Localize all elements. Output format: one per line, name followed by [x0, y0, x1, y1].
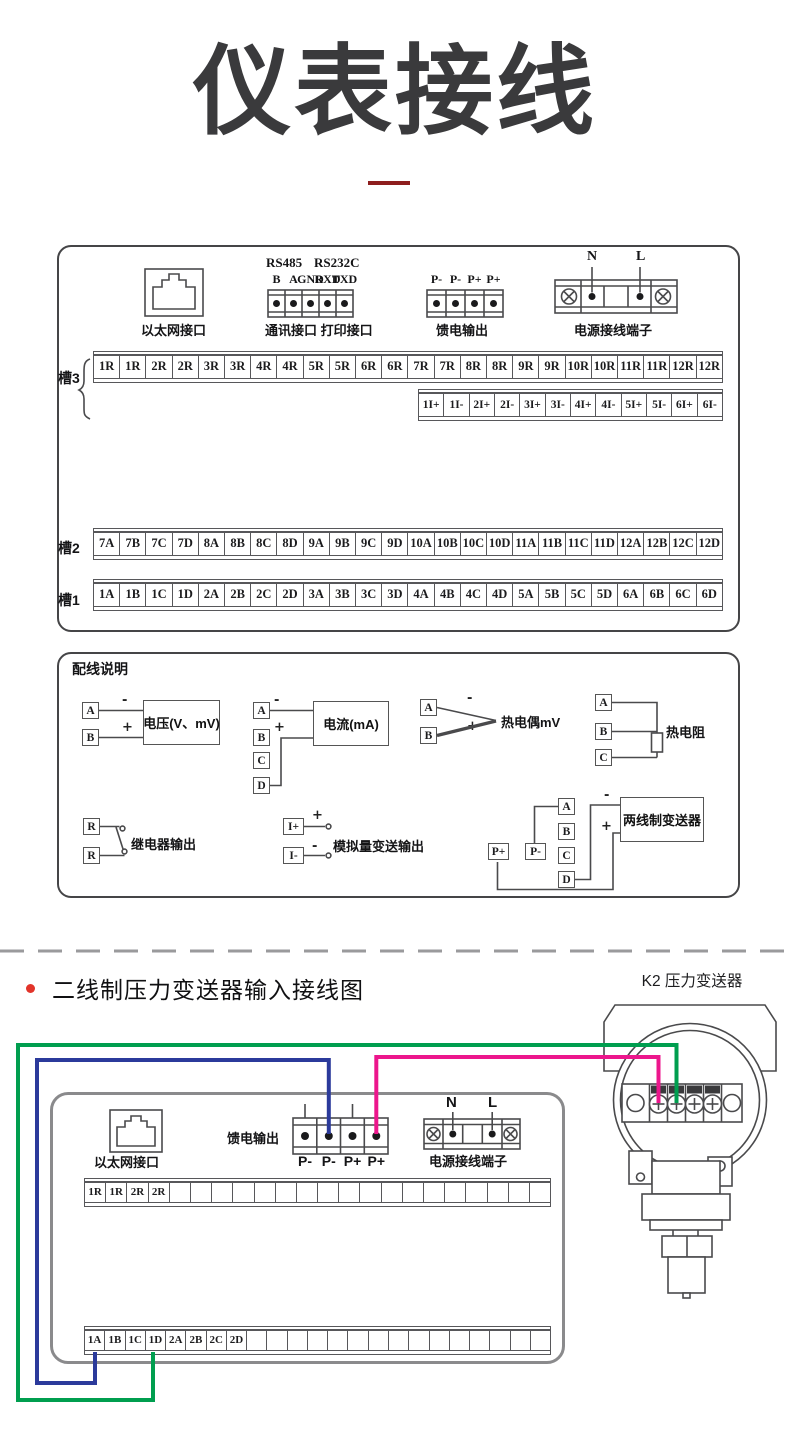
- terminal-cell: 2R: [126, 1182, 147, 1202]
- pressure-transmitter-icon: [604, 1005, 776, 1298]
- rs232c-header: RS232C: [314, 255, 360, 271]
- pin-label: P+: [467, 272, 481, 287]
- minus-sign: -: [122, 693, 127, 708]
- terminal-cell: 12R: [696, 355, 722, 378]
- page-title: 仪表接线: [0, 38, 790, 146]
- terminal-a: A: [82, 702, 99, 719]
- power-pin-n: N: [446, 1094, 457, 1111]
- terminal-cell: [530, 1330, 550, 1350]
- terminal-cell: 9B: [329, 532, 355, 555]
- slot3-row-i: 1I+1I-2I+2I-3I+3I-4I+4I-5I+5I-6I+6I-: [418, 389, 723, 421]
- terminal-cell: 8D: [276, 532, 302, 555]
- terminal-cell: 7R: [434, 355, 460, 378]
- letter-label: A: [654, 1135, 663, 1150]
- terminal-rail: [418, 416, 723, 421]
- terminal-cell: [487, 1182, 508, 1202]
- pin-label: B: [272, 272, 280, 287]
- power-caption: 电源接线端子: [429, 1151, 507, 1170]
- terminal-cell: 6R: [381, 355, 407, 378]
- terminal-cell: 11A: [512, 532, 538, 555]
- terminal-cell: [254, 1182, 275, 1202]
- terminal-cell: 10B: [434, 532, 460, 555]
- terminal-cell: 1C: [145, 583, 171, 606]
- pin-label: P-: [450, 272, 461, 287]
- terminal-cell: 3R: [224, 355, 250, 378]
- terminal-cell: 2C: [250, 583, 276, 606]
- terminal-cell: 5R: [329, 355, 355, 378]
- pin-label: P+: [368, 1153, 386, 1169]
- feed-caption: 馈电输出: [436, 320, 488, 339]
- terminal-p-minus: P-: [525, 843, 546, 860]
- terminal-cell: 1D: [172, 583, 198, 606]
- terminal-cell: 10C: [460, 532, 486, 555]
- transmitter-letter-labels: AB└A┘: [649, 1135, 722, 1150]
- terminal-cell: [465, 1182, 486, 1202]
- terminal-cell: 7R: [407, 355, 433, 378]
- terminal-p-plus: P+: [488, 843, 509, 860]
- terminal-cell: 1A: [94, 583, 119, 606]
- terminal-cell: [388, 1330, 408, 1350]
- terminal-cell: [489, 1330, 509, 1350]
- terminal-cell: 3I-: [545, 393, 570, 416]
- terminal-c: C: [253, 752, 270, 769]
- analog-out-label: 模拟量变送输出: [333, 836, 424, 855]
- terminal-cell: 2I-: [494, 393, 519, 416]
- terminal-cell: [381, 1182, 402, 1202]
- terminal-cell: 2B: [224, 583, 250, 606]
- minus-sign: -: [274, 693, 279, 708]
- terminal-cell: 1I-: [443, 393, 468, 416]
- terminal-cell: [327, 1330, 347, 1350]
- terminal-cell: 10D: [486, 532, 512, 555]
- terminal-cell: [423, 1182, 444, 1202]
- terminal-cell: 7B: [119, 532, 145, 555]
- sign-label: +: [690, 1118, 699, 1135]
- relay-label: 继电器输出: [131, 834, 196, 853]
- terminal-cell: 5I+: [621, 393, 646, 416]
- plus-sign: +: [312, 808, 323, 823]
- terminal-a: A: [595, 694, 612, 711]
- feed-caption: 馈电输出: [227, 1128, 279, 1147]
- terminal-cell: [469, 1330, 489, 1350]
- terminal-cell: 3I+: [519, 393, 544, 416]
- pin-label: P+: [486, 272, 500, 287]
- plus-sign: +: [467, 719, 478, 734]
- terminal-cell: 2D: [226, 1330, 246, 1350]
- terminal-cell: 11D: [591, 532, 617, 555]
- terminal-d: D: [253, 777, 270, 794]
- terminal-cell: 1B: [119, 583, 145, 606]
- comm-caption: 通讯接口 打印接口: [265, 320, 373, 339]
- plus-sign: +: [601, 819, 612, 834]
- terminal-cell: 7C: [145, 532, 171, 555]
- plus-sign: +: [274, 720, 285, 735]
- terminal-cell: 3R: [198, 355, 224, 378]
- terminal-cell: 2D: [276, 583, 302, 606]
- terminal-b: B: [420, 727, 437, 744]
- terminal-cell: 5R: [303, 355, 329, 378]
- terminal-rail: [93, 378, 723, 383]
- terminal-cell: 2R: [172, 355, 198, 378]
- letter-label: └A┘: [689, 1135, 717, 1150]
- terminal-c: C: [558, 847, 575, 864]
- terminal-cell: [169, 1182, 190, 1202]
- terminal-rail: [93, 606, 723, 611]
- minus-sign: -: [467, 691, 472, 706]
- pin-label: P+: [344, 1153, 362, 1169]
- terminal-cell: [359, 1182, 380, 1202]
- terminal-cell: 11R: [617, 355, 643, 378]
- rs485-header: RS485: [266, 255, 302, 271]
- terminal-cell: 11B: [538, 532, 564, 555]
- terminal-cell: 2R: [145, 355, 171, 378]
- thermocouple-label: 热电偶mV: [501, 712, 560, 731]
- terminal-cell: 12D: [696, 532, 722, 555]
- slot1-row: 1A1B1C1D2A2B2C2D3A3B3C3D4A4B4C4D5A5B5C5D…: [93, 579, 723, 611]
- terminal-c: C: [595, 749, 612, 766]
- wiring-explanation-title: 配线说明: [72, 659, 128, 679]
- terminal-cell: 5D: [591, 583, 617, 606]
- terminal-cell: 4R: [276, 355, 302, 378]
- terminal-cell: [338, 1182, 359, 1202]
- terminal-cell: 10A: [407, 532, 433, 555]
- terminal-cell: 4C: [460, 583, 486, 606]
- terminal-cell: 4B: [434, 583, 460, 606]
- terminal-rail: [93, 555, 723, 560]
- terminal-cell: 6D: [696, 583, 722, 606]
- terminal-cell: 9R: [512, 355, 538, 378]
- terminal-cell: 1B: [104, 1330, 124, 1350]
- pin-label: P-: [431, 272, 442, 287]
- terminal-cell: [444, 1182, 465, 1202]
- terminal-cell: [317, 1182, 338, 1202]
- terminal-cell: 2C: [206, 1330, 226, 1350]
- recorder-bottom-row: 1A1B1C1D2A2B2C2D: [84, 1326, 551, 1355]
- terminal-cell: [510, 1330, 530, 1350]
- terminal-a: A: [253, 702, 270, 719]
- slot1-label: 槽1: [58, 590, 80, 610]
- terminal-cell: [529, 1182, 550, 1202]
- terminal-cell: 3D: [381, 583, 407, 606]
- power-pin-l: L: [636, 249, 645, 265]
- terminal-cell: [347, 1330, 367, 1350]
- terminal-r1: R: [83, 818, 100, 835]
- terminal-cell: 8B: [224, 532, 250, 555]
- terminal-cell: 4I-: [595, 393, 620, 416]
- terminal-rail: [84, 1350, 551, 1355]
- section2-heading: 二线制压力变送器输入接线图: [52, 971, 364, 1005]
- terminal-cell: 12C: [669, 532, 695, 555]
- terminal-cell: 8R: [460, 355, 486, 378]
- slot3-row-r: 1R1R2R2R3R3R4R4R5R5R6R6R7R7R8R8R9R9R10R1…: [93, 351, 723, 383]
- terminal-rail: [84, 1202, 551, 1207]
- letter-label: B: [672, 1135, 681, 1150]
- comm-pin-labels: BAGNDRXDTXD: [264, 272, 356, 287]
- sign-label: -: [674, 1118, 679, 1135]
- ethernet-caption: 以太网接口: [141, 320, 206, 339]
- terminal-cell: [246, 1330, 266, 1350]
- terminal-cell: [402, 1182, 423, 1202]
- terminal-cell: 9D: [381, 532, 407, 555]
- slot2-row: 7A7B7C7D8A8B8C8D9A9B9C9D10A10B10C10D11A1…: [93, 528, 723, 560]
- terminal-cell: 10R: [591, 355, 617, 378]
- terminal-cell: 3B: [329, 583, 355, 606]
- terminal-cell: 1A: [85, 1330, 104, 1350]
- terminal-cell: 2R: [148, 1182, 169, 1202]
- terminal-b: B: [82, 729, 99, 746]
- terminal-cell: 1R: [94, 355, 119, 378]
- feed-pin-labels: P-P-P+P+: [293, 1153, 388, 1168]
- terminal-cell: [296, 1182, 317, 1202]
- red-bullet-icon: [26, 984, 35, 993]
- terminal-cell: [275, 1182, 296, 1202]
- terminal-cell: 4I+: [570, 393, 595, 416]
- terminal-cell: 2I+: [469, 393, 494, 416]
- transmitter-sign-labels: +-+-: [649, 1118, 722, 1133]
- terminal-cell: [232, 1182, 253, 1202]
- terminal-cell: 6I+: [671, 393, 696, 416]
- terminal-r2: R: [83, 847, 100, 864]
- terminal-cell: 5A: [512, 583, 538, 606]
- power-pin-n: N: [587, 249, 597, 265]
- terminal-cell: 4A: [407, 583, 433, 606]
- terminal-cell: 6B: [643, 583, 669, 606]
- minus-sign: -: [604, 788, 609, 803]
- wiring-explanation-panel: [57, 652, 740, 898]
- terminal-cell: [307, 1330, 327, 1350]
- transmitter-terminal-block: [622, 1084, 742, 1122]
- terminal-cell: 6A: [617, 583, 643, 606]
- terminal-cell: 11R: [643, 355, 669, 378]
- power-pin-l: L: [488, 1094, 497, 1111]
- recorder-box: [50, 1092, 565, 1364]
- terminal-cell: [287, 1330, 307, 1350]
- terminal-cell: 9A: [303, 532, 329, 555]
- terminal-cell: [190, 1182, 211, 1202]
- terminal-cell: 3A: [303, 583, 329, 606]
- terminal-cell: 8R: [486, 355, 512, 378]
- slot3-label: 槽3: [58, 368, 80, 388]
- terminal-cell: 7A: [94, 532, 119, 555]
- terminal-cell: 3C: [355, 583, 381, 606]
- two-wire-device-box: 两线制变送器: [620, 797, 704, 842]
- terminal-cell: 2A: [165, 1330, 185, 1350]
- power-caption: 电源接线端子: [574, 320, 652, 339]
- terminal-cell: 8C: [250, 532, 276, 555]
- terminal-b: B: [253, 729, 270, 746]
- terminal-b: B: [595, 723, 612, 740]
- terminal-cell: [429, 1330, 449, 1350]
- terminal-cell: 2A: [198, 583, 224, 606]
- terminal-cell: [211, 1182, 232, 1202]
- terminal-i-minus: I-: [283, 847, 304, 864]
- terminal-cell: 2B: [185, 1330, 205, 1350]
- minus-sign: -: [312, 839, 317, 854]
- terminal-cell: 11C: [565, 532, 591, 555]
- title-underline: [368, 181, 410, 185]
- terminal-cell: 8A: [198, 532, 224, 555]
- terminal-panel: [57, 245, 740, 632]
- terminal-b: B: [558, 823, 575, 840]
- terminal-cell: 5B: [538, 583, 564, 606]
- instrument-wiring-page: { "title": { "text": "仪表接线" }, "panel1":…: [0, 0, 790, 1435]
- k2-transmitter-label: K2 压力变送器: [612, 969, 772, 991]
- sign-label: -: [710, 1118, 715, 1135]
- terminal-i-plus: I+: [283, 818, 304, 835]
- terminal-cell: 7D: [172, 532, 198, 555]
- terminal-cell: [266, 1330, 286, 1350]
- terminal-cell: 1I+: [419, 393, 443, 416]
- pin-label: P-: [322, 1153, 336, 1169]
- terminal-cell: 1D: [145, 1330, 165, 1350]
- terminal-a: A: [420, 699, 437, 716]
- terminal-cell: 4R: [250, 355, 276, 378]
- rtd-label: 热电阻: [666, 722, 705, 741]
- plus-sign: +: [122, 720, 133, 735]
- terminal-cell: 12A: [617, 532, 643, 555]
- current-device-box: 电流(mA): [313, 701, 389, 746]
- terminal-cell: 9R: [538, 355, 564, 378]
- pin-label: TXD: [332, 272, 357, 287]
- terminal-cell: 1C: [125, 1330, 145, 1350]
- voltage-device-box: 电压(V、mV): [143, 700, 220, 745]
- ethernet-caption: 以太网接口: [94, 1152, 159, 1171]
- terminal-cell: 10R: [565, 355, 591, 378]
- terminal-cell: [368, 1330, 388, 1350]
- terminal-cell: 1R: [105, 1182, 126, 1202]
- terminal-cell: 1R: [85, 1182, 105, 1202]
- terminal-cell: 6I-: [697, 393, 722, 416]
- terminal-cell: 6R: [355, 355, 381, 378]
- pin-label: P-: [298, 1153, 312, 1169]
- terminal-cell: 12R: [669, 355, 695, 378]
- terminal-cell: 6C: [669, 583, 695, 606]
- terminal-cell: [408, 1330, 428, 1350]
- feed-pin-labels: P-P-P+P+: [427, 272, 503, 287]
- recorder-top-row: 1R1R2R2R: [84, 1178, 551, 1207]
- terminal-cell: 9C: [355, 532, 381, 555]
- terminal-cell: 4D: [486, 583, 512, 606]
- terminal-cell: 5C: [565, 583, 591, 606]
- terminal-cell: 1R: [119, 355, 145, 378]
- terminal-d: D: [558, 871, 575, 888]
- terminal-cell: 5I-: [646, 393, 671, 416]
- terminal-cell: [449, 1330, 469, 1350]
- terminal-a: A: [558, 798, 575, 815]
- terminal-cell: [508, 1182, 529, 1202]
- terminal-cell: 12B: [643, 532, 669, 555]
- slot2-label: 槽2: [58, 538, 80, 558]
- sign-label: +: [654, 1118, 663, 1135]
